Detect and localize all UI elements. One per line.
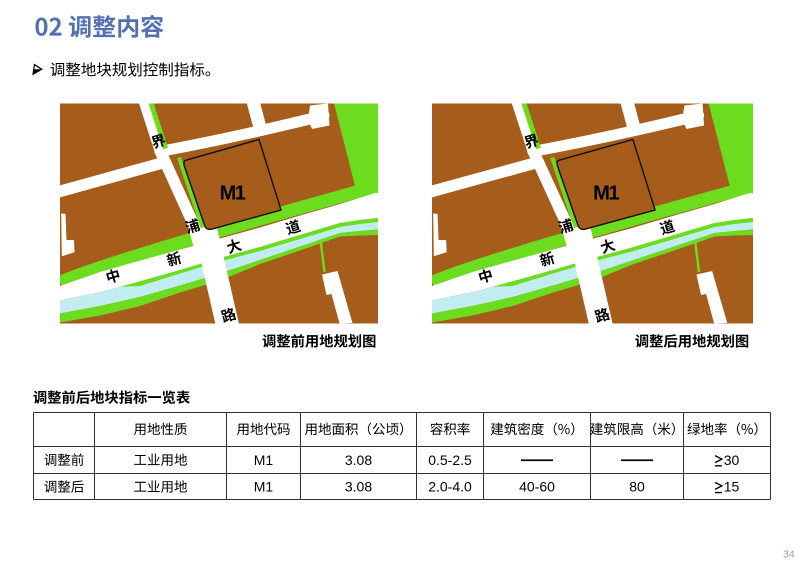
svg-text:3.08: 3.08 [345, 479, 372, 495]
svg-text:0.5-2.5: 0.5-2.5 [428, 452, 472, 468]
svg-text:15: 15 [724, 479, 740, 495]
svg-text:80: 80 [629, 479, 645, 495]
svg-text:M1: M1 [593, 183, 619, 205]
svg-text:3.08: 3.08 [345, 452, 372, 468]
svg-text:M1: M1 [254, 479, 274, 495]
svg-text:40-60: 40-60 [519, 479, 555, 495]
svg-text:2.0-4.0: 2.0-4.0 [428, 479, 472, 495]
svg-text:34: 34 [783, 549, 795, 561]
svg-text:M1: M1 [254, 452, 274, 468]
svg-text:30: 30 [724, 452, 740, 468]
svg-text:M1: M1 [220, 183, 246, 205]
